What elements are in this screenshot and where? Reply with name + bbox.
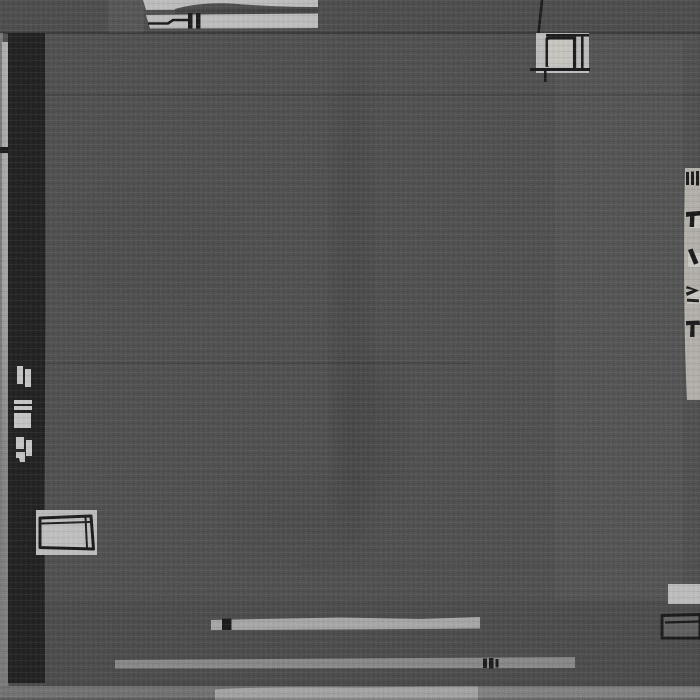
rug-photo xyxy=(0,0,700,700)
pile-grain-soft xyxy=(0,0,700,700)
rug-artwork xyxy=(0,0,700,700)
